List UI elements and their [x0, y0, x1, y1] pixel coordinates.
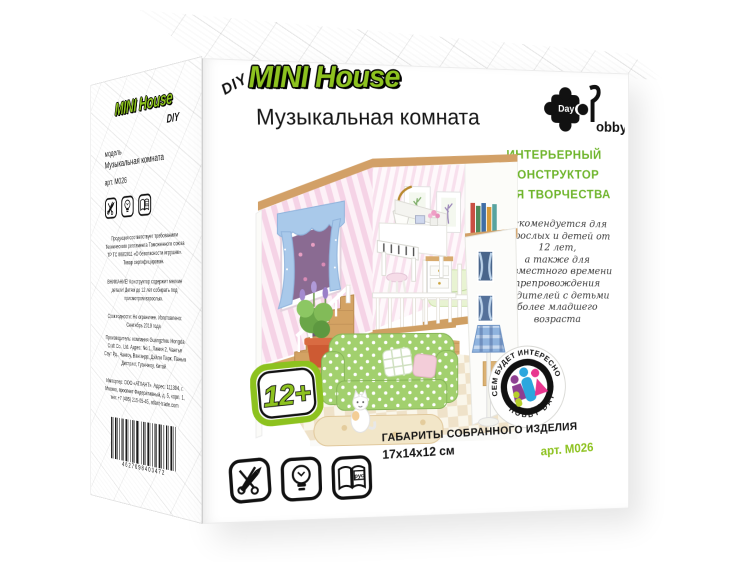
diy-label: DIY [218, 71, 250, 99]
product-box-photo: MINI House DIY модель Музыкальная комнат… [0, 0, 750, 562]
pink-pillow [412, 353, 437, 378]
side-diy-label: DIY [167, 110, 180, 126]
side-shelf-life-text: Срок годности: Не ограничен. Изготовлено… [104, 312, 187, 332]
light-bulb-icon [279, 455, 323, 503]
gingham-pillow [382, 347, 413, 377]
light-bulb-icon [121, 195, 134, 218]
product-title: Музыкальная комната [256, 104, 480, 131]
hobby-day-logo: Day obby [544, 81, 625, 144]
family-badge: ВСЕМ БУДЕТ ИНТЕРЕСНО! HOBBY DAY [487, 344, 567, 431]
feature-icons: рус [229, 455, 373, 505]
scissors-icon [227, 456, 273, 506]
green-polka-sofa [322, 333, 458, 410]
piano-stool [387, 273, 407, 293]
box-side-panel: MINI House DIY модель Музыкальная комнат… [91, 56, 202, 524]
manual-book-icon: рус [138, 193, 151, 217]
side-manufacturer-text: Производитель: компания Guangzhou Hongda… [104, 334, 187, 374]
side-warning-text: ВНИМАНИЕ! Конструктор содержит мелкие де… [104, 277, 187, 304]
side-importer-text: Импортер: ООО «АТЛАНТ». Адрес: 111394, г… [104, 376, 187, 412]
side-brand-logo: MINI House [91, 81, 201, 126]
side-model-label: модель [105, 147, 122, 159]
age-badge: 12+ [250, 361, 323, 427]
brand-logo: MINI House [248, 59, 400, 95]
logo-h-hook [590, 87, 599, 122]
side-feature-icons: рус [105, 193, 152, 220]
book-language-label: рус [354, 473, 364, 480]
logo-day-text: Day [558, 104, 575, 115]
logo-hobby-text: obby [596, 119, 625, 136]
age-badge-text: 12+ [262, 377, 312, 414]
side-art-number: арт. M026 [105, 175, 127, 187]
side-legal-text: Продукция соответствует требованиям Техн… [104, 230, 187, 268]
barcode: 4627098403472 [111, 417, 178, 480]
box-front-face: DIY MINI House Музыкальная комната Day o… [202, 58, 629, 524]
manual-book-icon: рус [330, 454, 373, 502]
scissors-icon [105, 197, 117, 220]
art-number: арт. M026 [540, 440, 593, 458]
